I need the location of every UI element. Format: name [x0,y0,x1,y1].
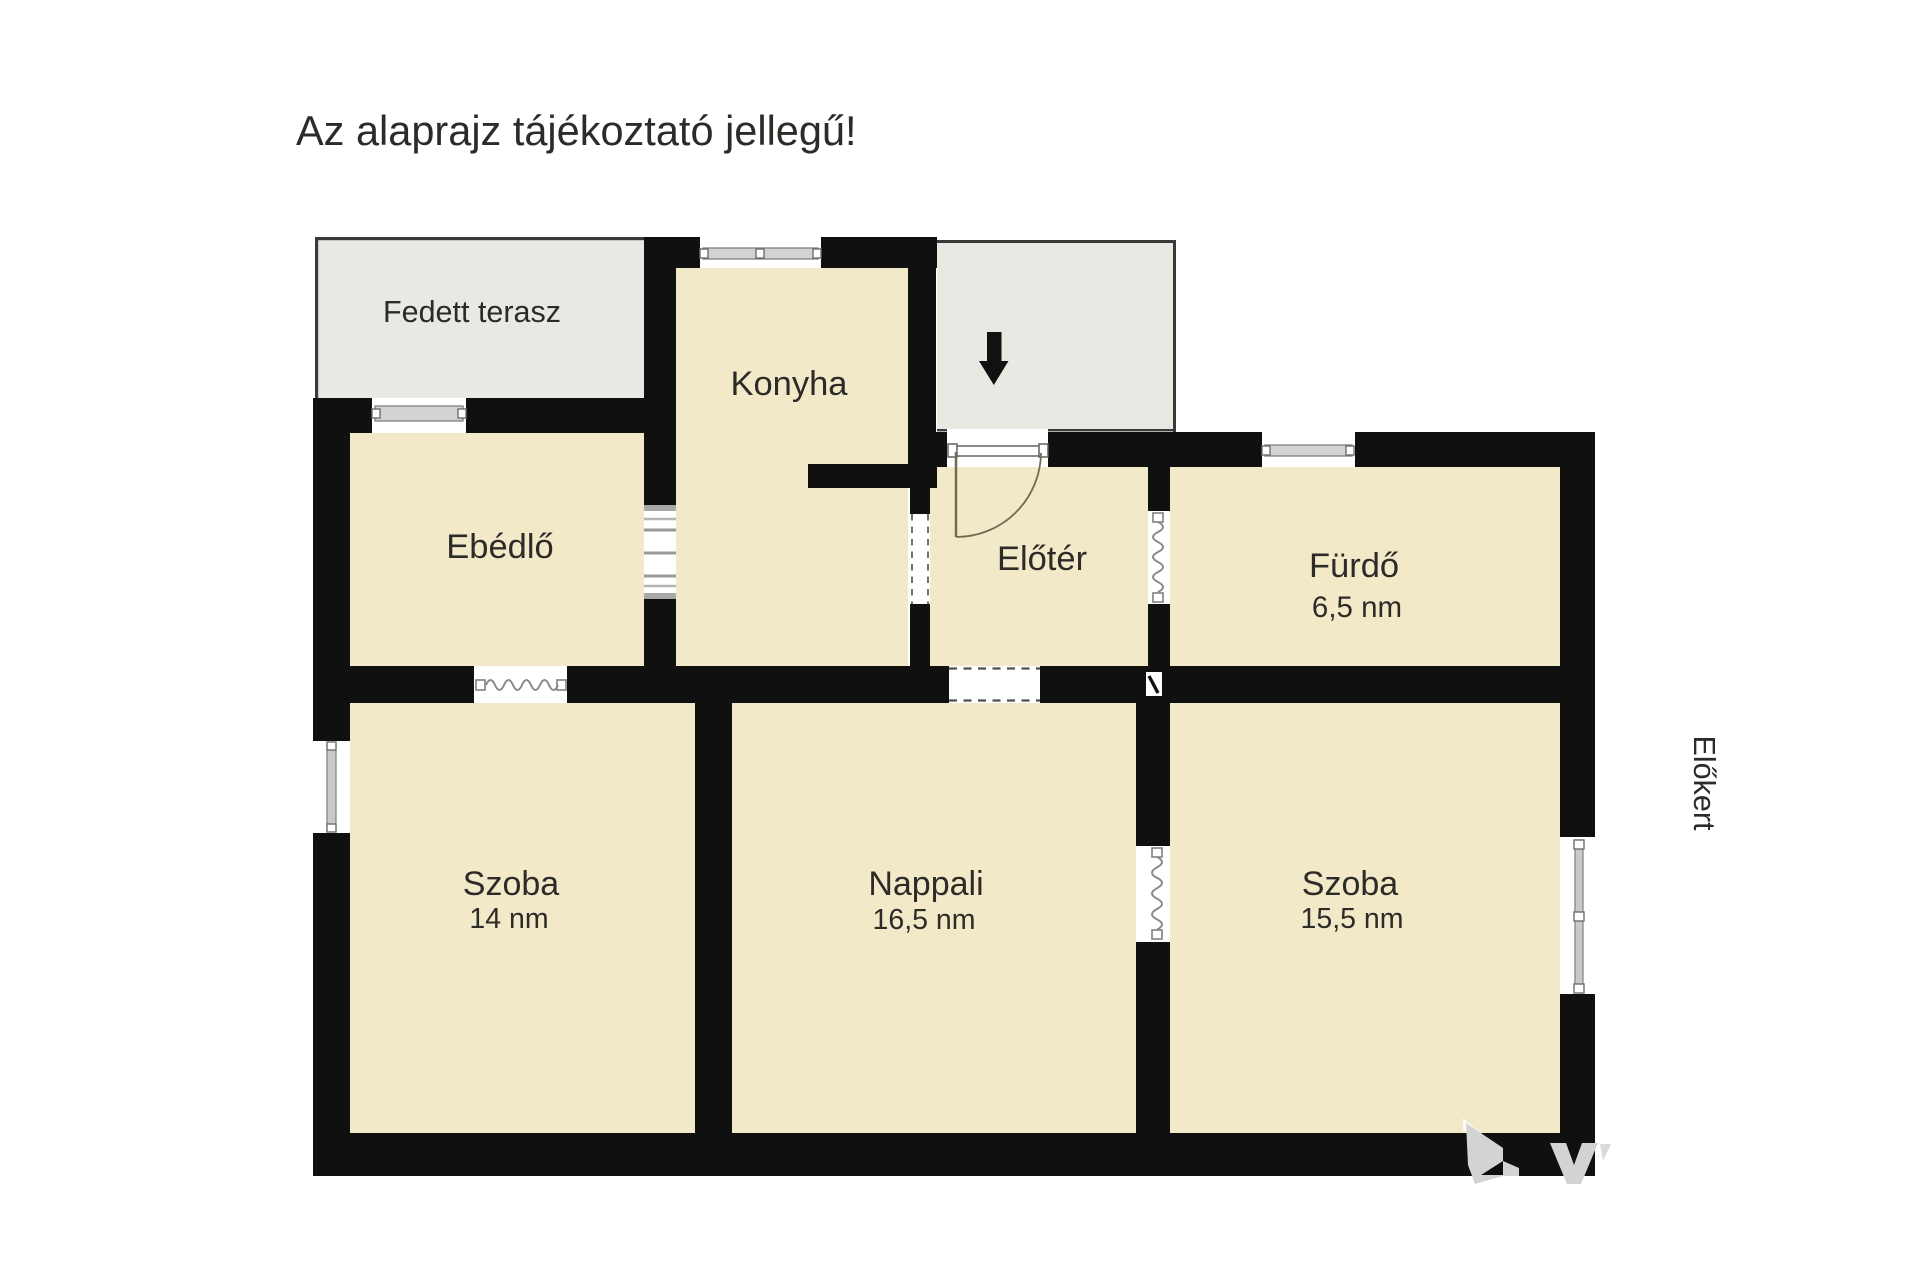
svg-text:Konyha: Konyha [730,365,848,403]
svg-text:14 nm: 14 nm [469,903,548,935]
svg-text:Előkert: Előkert [1687,736,1721,831]
svg-text:16,5 nm: 16,5 nm [873,904,976,936]
svg-text:Fürdő: Fürdő [1309,547,1399,585]
svg-text:Nappali: Nappali [868,865,983,903]
svg-text:Szoba: Szoba [1302,865,1398,903]
svg-text:Előtér: Előtér [997,540,1087,578]
svg-text:Ebédlő: Ebédlő [446,528,553,566]
svg-text:6,5 nm: 6,5 nm [1312,591,1402,624]
svg-text:Fedett terasz: Fedett terasz [383,295,561,329]
svg-text:Szoba: Szoba [463,865,559,903]
svg-text:Az alaprajz tájékoztató jelleg: Az alaprajz tájékoztató jellegű! [296,107,857,154]
svg-text:15,5 nm: 15,5 nm [1301,903,1404,935]
